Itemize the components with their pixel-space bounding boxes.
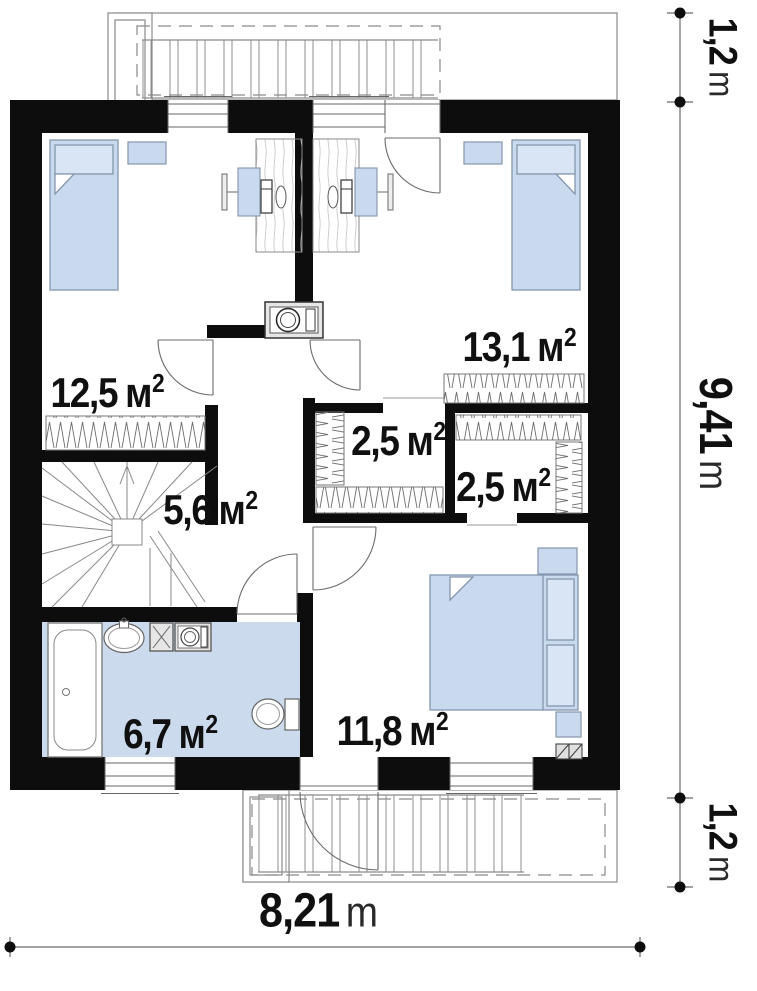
- area-unit: м: [512, 463, 538, 510]
- area-label-closet-right: 2,5м2: [456, 463, 550, 511]
- chair-left: [222, 168, 260, 216]
- balcony-bottom: [243, 790, 617, 882]
- floor-plan-drawing: [0, 0, 757, 991]
- dim-balcony-bottom: 1,2m: [700, 803, 745, 882]
- area-label-bedroom-top-right: 13,1м2: [463, 323, 576, 371]
- nightstand-left: [128, 142, 166, 164]
- area-unit: м: [537, 323, 563, 370]
- area-unit: м: [179, 710, 205, 757]
- dim-house-width: 8,21m: [259, 884, 377, 939]
- dim-balcony-top: 1,2m: [700, 18, 745, 97]
- area-label-bedroom-bottom: 11,8м2: [337, 707, 448, 755]
- dim-house-depth: 9,41m: [689, 377, 743, 489]
- area-label-closet-left: 2,5м2: [351, 417, 445, 465]
- bathtub: [48, 623, 102, 757]
- area-label-bedroom-top-left: 12,5м2: [51, 369, 164, 417]
- area-label-bathroom: 6,7м2: [123, 710, 217, 758]
- area-value: 13,1: [463, 323, 530, 370]
- area-value: 2,5: [456, 463, 503, 510]
- single-bed-right: [512, 140, 580, 290]
- area-value: 12,5: [51, 369, 118, 416]
- area-label-hall: 5,6м2: [163, 486, 257, 534]
- nightstand-bed-bottom: [556, 712, 581, 737]
- dim-unit: m: [702, 71, 741, 96]
- area-value: 11,8: [337, 707, 402, 754]
- dim-unit: m: [346, 889, 377, 937]
- area-sup: 2: [245, 485, 256, 515]
- area-unit: м: [409, 707, 435, 754]
- dim-unit: m: [691, 460, 735, 489]
- single-bed-left: [50, 140, 118, 290]
- area-value: 6,7: [123, 710, 170, 757]
- dim-value: 1,2: [701, 18, 745, 65]
- area-unit: м: [407, 417, 433, 464]
- radiator: [556, 744, 582, 759]
- nightstand-right: [464, 142, 502, 164]
- toilet: [252, 699, 299, 730]
- area-value: 2,5: [351, 417, 398, 464]
- floor-plan-page: 12,5м2 13,1м2 2,5м2 2,5м2 5,6м2 6,7м2 11…: [0, 0, 757, 991]
- chair-right: [355, 168, 393, 216]
- desk-right: [313, 139, 359, 252]
- area-sup: 2: [433, 416, 444, 446]
- area-sup: 2: [436, 706, 447, 736]
- vent-chimney: [265, 302, 323, 338]
- area-sup: 2: [152, 368, 163, 398]
- dim-value: 9,41: [690, 377, 742, 454]
- washing-machine: [175, 623, 211, 651]
- area-unit: м: [125, 369, 151, 416]
- area-value: 5,6: [163, 486, 210, 533]
- dim-value: 8,21: [259, 885, 339, 938]
- laundry-basket: [150, 623, 173, 651]
- dim-unit: m: [702, 856, 741, 881]
- area-sup: 2: [205, 709, 216, 739]
- area-sup: 2: [538, 462, 549, 492]
- area-unit: м: [219, 486, 245, 533]
- stairs: [42, 462, 217, 607]
- nightstand-bed-top: [538, 548, 577, 574]
- desk-left: [256, 139, 302, 252]
- double-bed: [430, 575, 578, 710]
- area-sup: 2: [564, 322, 575, 352]
- dim-value: 1,2: [701, 803, 745, 850]
